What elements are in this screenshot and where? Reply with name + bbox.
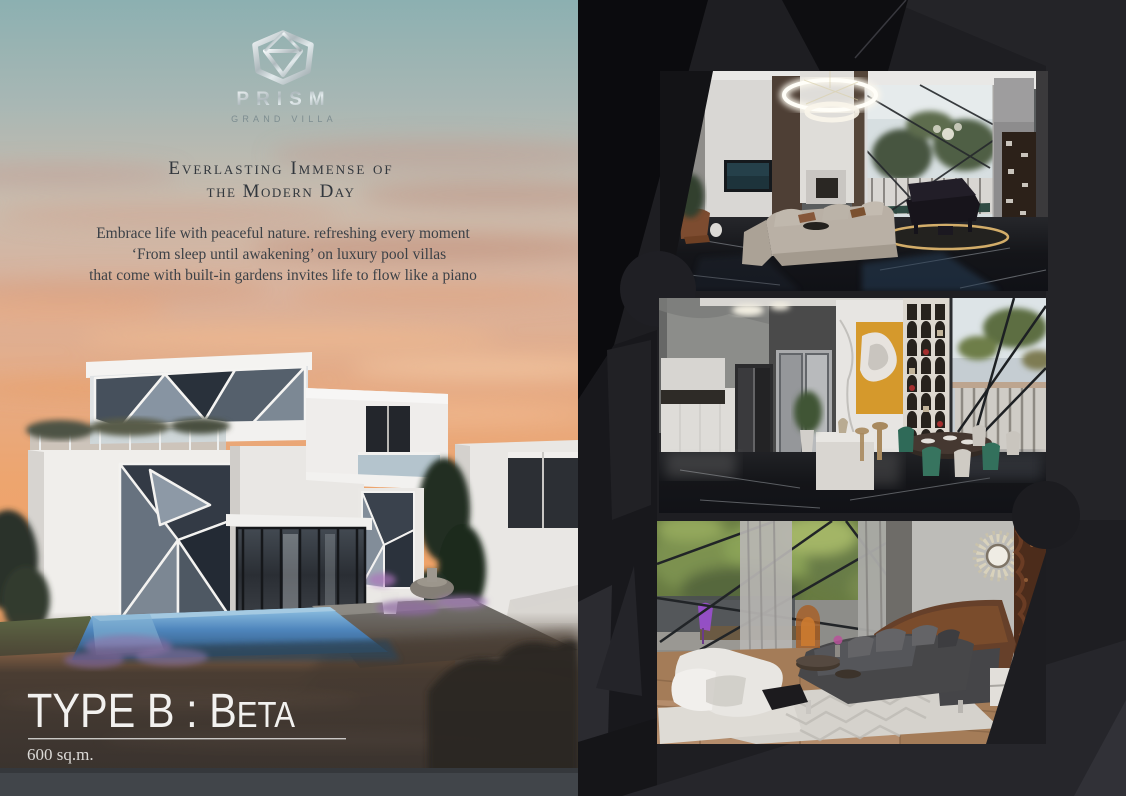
svg-text:Embrace life with peaceful nat: Embrace life with peaceful nature. refre…: [96, 225, 470, 242]
svg-text:Everlasting Immense of: Everlasting Immense of: [168, 158, 393, 179]
svg-text:600 sq.m.: 600 sq.m.: [27, 745, 94, 764]
svg-text:the Modern Day: the Modern Day: [207, 181, 356, 202]
svg-text:PRISM: PRISM: [236, 89, 331, 110]
svg-text:GRAND VILLA: GRAND VILLA: [231, 114, 337, 124]
svg-text:‘From sleep until awakening’ o: ‘From sleep until awakening’ on luxury p…: [132, 246, 446, 263]
svg-text:that come with built-in garden: that come with built-in gardens invites …: [89, 267, 477, 284]
